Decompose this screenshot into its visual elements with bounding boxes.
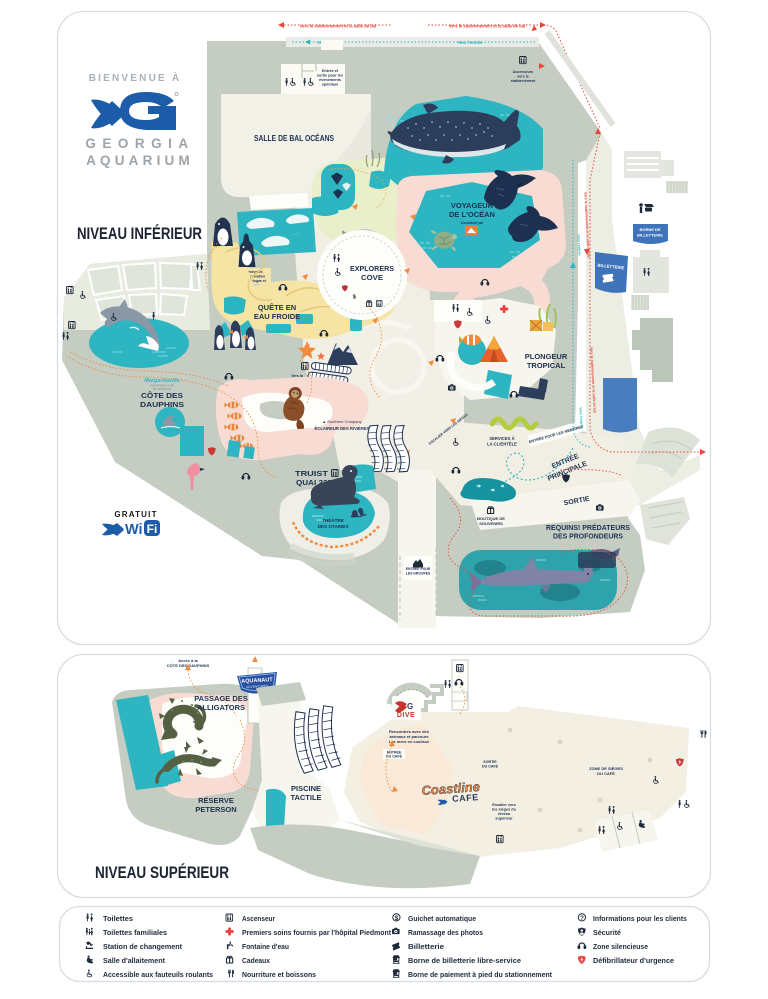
svg-text:supérieur: supérieur <box>495 817 513 821</box>
svg-text:NIVEAU SUPÉRIEUR: NIVEAU SUPÉRIEUR <box>95 863 229 882</box>
svg-text:Fi: Fi <box>147 522 158 536</box>
svg-text:Toilettes familiales: Toilettes familiales <box>103 928 167 937</box>
svg-text:Construit par: Construit par <box>461 221 484 225</box>
svg-text:Accessible aux fauteuils roula: Accessible aux fauteuils roulants <box>103 970 213 979</box>
svg-text:REQUINS! PRÉDATEURS: REQUINS! PRÉDATEURS <box>546 523 630 532</box>
svg-text:Ascenseurs: Ascenseurs <box>513 70 533 74</box>
svg-text:Ascenseur: Ascenseur <box>242 914 275 923</box>
svg-text:les sièges du: les sièges du <box>492 808 517 812</box>
svg-text:Informations pour les clients: Informations pour les clients <box>593 914 687 923</box>
svg-text:Borne de paiement à pied du st: Borne de paiement à pied du stationnemen… <box>408 970 552 979</box>
svg-text:DE L'OCÉAN: DE L'OCÉAN <box>449 210 495 219</box>
svg-text:COVE: COVE <box>361 273 383 282</box>
svg-text:GEORGIA: GEORGIA <box>85 136 194 151</box>
svg-text:Premiers soins fournis par l'h: Premiers soins fournis par l'hôpital Pie… <box>242 928 391 937</box>
svg-text:G: G <box>407 702 413 711</box>
svg-text:THÉÂTRE: THÉÂTRE <box>322 516 344 523</box>
svg-text:ALLIGATORS: ALLIGATORS <box>197 703 245 712</box>
svg-text:▲ Southern Company: ▲ Southern Company <box>322 419 362 424</box>
svg-text:AQUARIUM: AQUARIUM <box>86 153 194 168</box>
svg-text:BORNE DE: BORNE DE <box>639 227 660 232</box>
svg-text:DU CAFÉ: DU CAFÉ <box>482 764 499 769</box>
svg-text:SOUVENIRS: SOUVENIRS <box>479 521 503 526</box>
svg-text:Fontaine d'eau: Fontaine d'eau <box>242 942 289 951</box>
svg-text:Borne de billetterie libre-ser: Borne de billetterie libre-service <box>408 956 521 965</box>
svg-text:SALLE DE BAL OCÉANS: SALLE DE BAL OCÉANS <box>254 134 335 143</box>
svg-text:Wi: Wi <box>125 522 143 538</box>
svg-text:TRUIST: TRUIST <box>295 469 328 478</box>
svg-text:QUÊTE EN: QUÊTE EN <box>258 303 296 312</box>
svg-text:spéciaux: spéciaux <box>322 83 339 87</box>
svg-text:PASSAGE DES: PASSAGE DES <box>194 694 248 703</box>
svg-text:EXPLORERS: EXPLORERS <box>350 264 394 273</box>
svg-text:DES PROFONDEURS: DES PROFONDEURS <box>553 534 623 541</box>
svg-text:LES GROUPES: LES GROUPES <box>406 572 431 576</box>
svg-text:Zone silencieuse: Zone silencieuse <box>593 942 648 951</box>
svg-text:Station de changement: Station de changement <box>103 942 182 951</box>
svg-text:ENTRÉE POUR: ENTRÉE POUR <box>406 566 431 571</box>
svg-text:Cadeaux: Cadeaux <box>242 956 271 965</box>
svg-text:stationnement: stationnement <box>511 79 536 83</box>
svg-text:TACTILE: TACTILE <box>290 793 321 802</box>
svg-text:Billetterie: Billetterie <box>408 942 444 951</box>
svg-text:Ramassage des photos: Ramassage des photos <box>408 928 483 937</box>
svg-text:Défibrillateur d'urgence: Défibrillateur d'urgence <box>593 956 674 965</box>
svg-text:Guichet automatique: Guichet automatique <box>408 914 476 923</box>
svg-text:Entrée et: Entrée et <box>322 69 339 73</box>
svg-text:VACATION CLUB: VACATION CLUB <box>150 384 175 388</box>
svg-text:BILLETTERIE: BILLETTERIE <box>637 233 663 238</box>
svg-text:Vers l'entrée: Vers l'entrée <box>458 40 483 45</box>
svg-text:Toilettes: Toilettes <box>103 914 133 923</box>
svg-text:Les mers en coulisse: Les mers en coulisse <box>389 739 430 744</box>
svg-text:NIVEAU INFÉRIEUR: NIVEAU INFÉRIEUR <box>77 224 202 243</box>
svg-text:CAFE: CAFE <box>452 792 479 804</box>
svg-text:TROPICAL: TROPICAL <box>527 361 566 370</box>
svg-text:Nourriture et boissons: Nourriture et boissons <box>242 970 316 979</box>
svg-text:Vers le stationnement et la sa: Vers le stationnement et la salle de bal <box>449 24 526 29</box>
svg-text:DU CAFÉ: DU CAFÉ <box>386 754 403 759</box>
svg-text:Escalier vers: Escalier vers <box>492 803 515 807</box>
svg-text:SERVICES À: SERVICES À <box>489 436 514 441</box>
svg-text:VOYAGEUR: VOYAGEUR <box>451 201 494 210</box>
svg-text:DAUPHINS: DAUPHINS <box>140 400 184 409</box>
svg-text:sortie pour les: sortie pour les <box>317 74 343 78</box>
svg-text:Sécurité: Sécurité <box>593 928 621 937</box>
svg-text:DU CAFÉ: DU CAFÉ <box>597 771 615 776</box>
svg-text:SORTIE: SORTIE <box>483 760 497 764</box>
svg-text:Salle d'allaitement: Salle d'allaitement <box>103 956 165 965</box>
svg-text:DIVE: DIVE <box>397 712 415 719</box>
svg-text:PISCINE: PISCINE <box>291 784 321 793</box>
svg-text:GRATUIT: GRATUIT <box>114 510 157 519</box>
svg-text:PLONGEUR: PLONGEUR <box>525 352 568 361</box>
svg-text:PETERSON: PETERSON <box>195 805 236 814</box>
svg-text:ÉCLAIREUR DES RIVIÈRES: ÉCLAIREUR DES RIVIÈRES <box>315 426 370 431</box>
svg-text:CÔTE DES: CÔTE DES <box>141 391 183 400</box>
svg-text:DES OTARIES: DES OTARIES <box>318 524 349 529</box>
svg-text:niveau: niveau <box>498 812 511 816</box>
svg-text:LA CLIENTÈLE: LA CLIENTÈLE <box>487 442 517 447</box>
svg-text:Vers le stationnement et la sa: Vers le stationnement et la salle de bal <box>300 24 377 29</box>
svg-text:BIENVENUE À: BIENVENUE À <box>89 71 182 84</box>
svg-text:événements: événements <box>319 78 341 82</box>
svg-text:EAU FROIDE: EAU FROIDE <box>254 312 300 321</box>
svg-text:vers le: vers le <box>517 75 528 79</box>
svg-text:RÉSERVE: RÉSERVE <box>198 796 234 805</box>
